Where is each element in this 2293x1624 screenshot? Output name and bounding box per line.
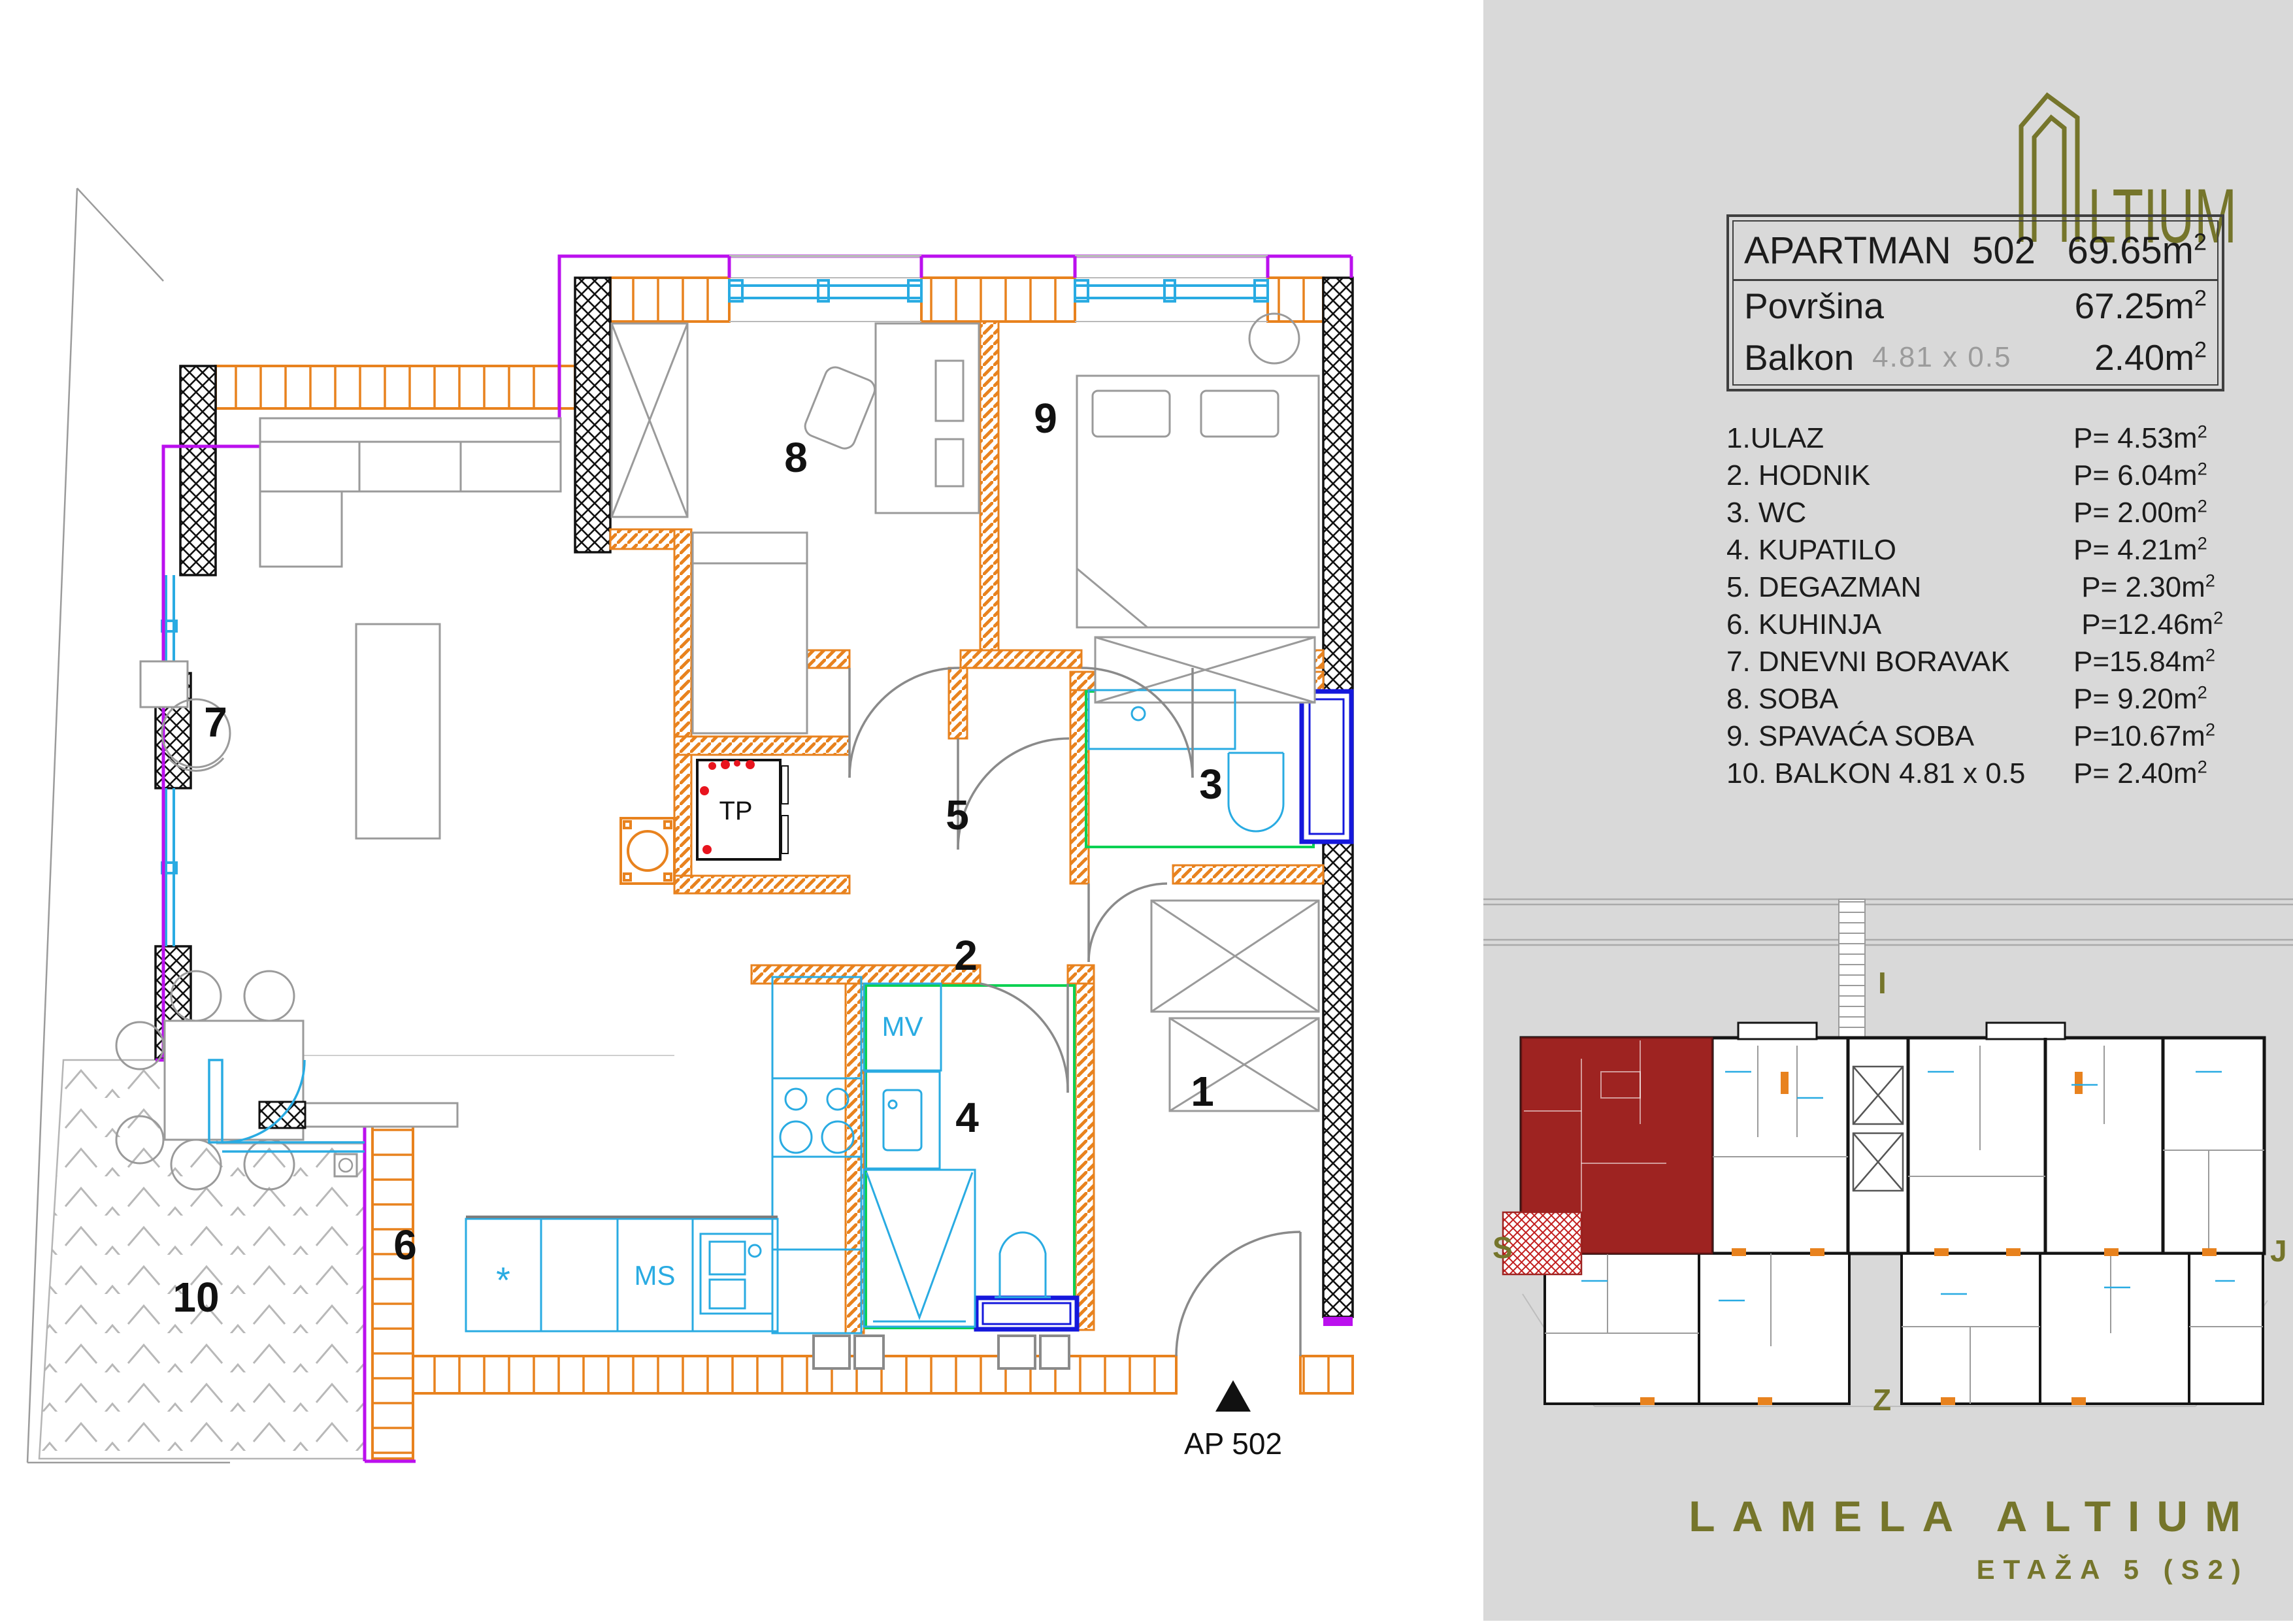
balkon-dimensions: 4.81 x 0.5: [1872, 341, 2011, 374]
room-number-1: 1: [1191, 1068, 1214, 1115]
room-list-item: 5. DEGAZMAN P= 2.30m2: [1726, 569, 2236, 606]
room-list-item: 8. SOBAP= 9.20m2: [1726, 680, 2236, 718]
table-row-povrsina: Površina 67.25m2: [1734, 281, 2217, 331]
room-list-item: 4. KUPATILOP= 4.21m2: [1726, 531, 2236, 569]
room-number-6: 6: [393, 1221, 417, 1268]
access-path: [1839, 899, 1865, 1039]
room-list-item: 1.ULAZP= 4.53m2: [1726, 420, 2236, 457]
apartment-marker-label: AP 502: [1184, 1427, 1282, 1461]
room-number-3: 3: [1199, 761, 1223, 808]
apartment-total-area: 69.65m: [2068, 229, 2194, 272]
vent-unit: [621, 818, 674, 884]
compass-right: J: [2270, 1234, 2287, 1268]
site-roads: [1483, 899, 2293, 945]
floor-plan-svg: 1 2 3 4 5 6 7 8 9 10 TP MV MS * AP 502: [0, 0, 1483, 1621]
compass-top: I: [1878, 966, 1887, 1000]
entrance-marker: [1215, 1380, 1251, 1412]
room-list-item: 10. BALKON 4.81 x 0.5P= 2.40m2: [1726, 755, 2236, 792]
room-list-item: 3. WCP= 2.00m2: [1726, 494, 2236, 531]
room-list-item: 2. HODNIKP= 6.04m2: [1726, 457, 2236, 494]
room-list: 1.ULAZP= 4.53m2 2. HODNIKP= 6.04m2 3. WC…: [1726, 420, 2236, 792]
povrsina-value: 67.25m: [2075, 286, 2194, 326]
room9-furniture: [1077, 314, 1319, 703]
room-number-8: 8: [784, 434, 808, 481]
table-row-apartment: APARTMAN 502 69.65m2: [1734, 222, 2217, 281]
project-subtitle: ETAŽA 5 (S2): [1977, 1554, 2249, 1585]
ms-label: MS: [635, 1260, 676, 1291]
room-number-5: 5: [946, 791, 969, 838]
tp-label: TP: [719, 797, 752, 825]
balkon-label: Balkon: [1744, 337, 1854, 378]
mv-label: MV: [882, 1011, 923, 1042]
floor-keyplan-minimap: I S J Z: [1483, 876, 2293, 1418]
room-number-10: 10: [173, 1274, 219, 1321]
star-label: *: [496, 1259, 510, 1301]
povrsina-label: Površina: [1744, 285, 1884, 327]
room-number-2: 2: [954, 932, 978, 979]
room-number-7: 7: [204, 699, 227, 746]
room-list-item: 9. SPAVAĆA SOBAP=10.67m2: [1726, 718, 2236, 755]
info-sidebar: LTIUM APARTMAN 502 69.65m2 Površina 67.2…: [1483, 0, 2293, 1621]
compass-left: S: [1493, 1231, 1513, 1265]
room-number-4: 4: [955, 1094, 979, 1141]
entry-wardrobes: [1151, 901, 1319, 1111]
room-number-9: 9: [1034, 395, 1057, 442]
highlighted-apartment: [1503, 1038, 1712, 1274]
floor-plan-area: 1 2 3 4 5 6 7 8 9 10 TP MV MS * AP 502: [0, 0, 1483, 1621]
compass-bottom: Z: [1873, 1383, 1891, 1417]
wc-fixtures: [1089, 690, 1283, 831]
balkon-value: 2.40m: [2094, 337, 2194, 378]
apartment-info-table: APARTMAN 502 69.65m2 Površina 67.25m2 Ba…: [1726, 214, 2224, 391]
room-list-item: 6. KUHINJA P=12.46m2: [1726, 606, 2236, 643]
table-row-balkon: Balkon 4.81 x 0.5 2.40m2: [1734, 331, 2217, 384]
apartment-title: APARTMAN 502: [1744, 229, 2036, 273]
highlighted-balcony: [1503, 1212, 1581, 1274]
project-title: LAMELA ALTIUM: [1689, 1491, 2258, 1541]
room-list-item: 7. DNEVNI BORAVAKP=15.84m2: [1726, 643, 2236, 680]
